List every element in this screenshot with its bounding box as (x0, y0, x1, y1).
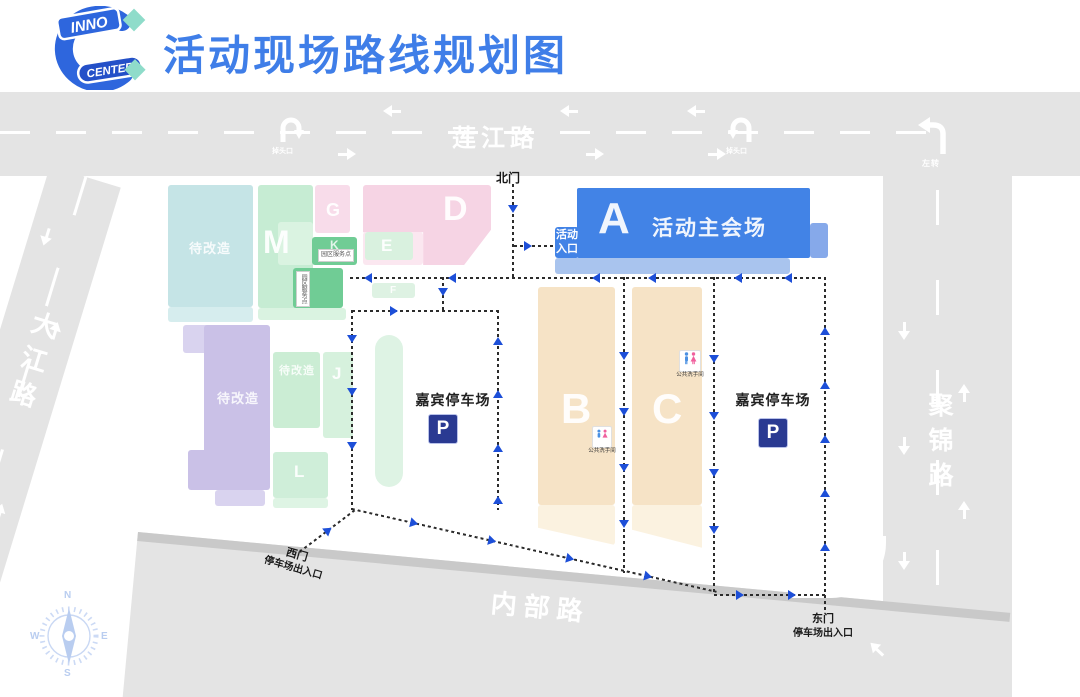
east-gate-label: 东门 停车场出入口 (773, 612, 873, 640)
building-letter-d: D (443, 190, 468, 229)
route-arrow-icon (347, 442, 357, 450)
east-parking-label: 嘉宾停车场 (718, 390, 828, 410)
lane-arrow-up-icon (963, 387, 966, 402)
route-arrow-icon (619, 352, 629, 360)
route-map-page: INNO CENTER 活动现场路线规划图 莲江路 掉头口 掉头口 左转 (0, 0, 1080, 697)
road-label-lianjiang: 莲江路 (452, 118, 539, 153)
route-arrow-icon (820, 381, 830, 389)
lane-arrow-left-icon (563, 110, 578, 113)
page-title: 活动现场路线规划图 (163, 22, 568, 83)
west-parking-label: 嘉宾停车场 (398, 390, 508, 410)
building-letter-f: F (390, 285, 396, 296)
building-letter-j: J (332, 364, 341, 384)
route-arrow-icon (619, 464, 629, 472)
lane-arrow-right-icon (338, 153, 353, 156)
building-letter-c: C (652, 385, 682, 433)
route-arrow-icon (493, 337, 503, 345)
restroom-label: 公共洗手间 (666, 372, 714, 378)
route-arrow-icon (709, 526, 719, 534)
u-turn-label: 掉头口 (272, 146, 293, 156)
building-letter-e: E (381, 236, 392, 256)
site-corner-patch (790, 536, 886, 598)
u-turn-icon (728, 116, 754, 149)
route-north-gate (512, 184, 514, 278)
route-east-loop-bottom (714, 594, 826, 596)
compass-rose-icon (30, 594, 108, 678)
route-arrow-icon (709, 469, 719, 477)
west-parking-badge: P (428, 414, 458, 444)
lane-arrow-right-icon (586, 153, 601, 156)
main-venue-band (555, 258, 790, 274)
building-l-strip (273, 498, 328, 508)
u-turn-icon (278, 116, 304, 149)
route-arrow-icon (347, 388, 357, 396)
venue-letter-a: A (598, 194, 630, 244)
restroom-icon (592, 426, 612, 448)
main-venue-step (810, 223, 828, 258)
route-arrow-icon (820, 327, 830, 335)
venue-entrance-line2: 入口 (556, 243, 578, 257)
lane-arrow-down-icon (903, 322, 906, 337)
route-arrow-icon (409, 517, 419, 529)
route-west-gate-spur (299, 508, 358, 553)
route-arrow-icon (734, 273, 742, 283)
route-arrow-icon (322, 524, 334, 537)
road-label-jujin: 聚锦路 (921, 392, 957, 497)
lane-arrow-right-icon (708, 153, 723, 156)
lane-arrow-turn-icon (871, 644, 884, 656)
compass-w: W (30, 631, 39, 642)
lane-arrow-up-icon (963, 504, 966, 519)
lane-arrow-down-icon (903, 552, 906, 567)
logo-icon: INNO CENTER (38, 6, 156, 90)
route-arrow-icon (820, 543, 830, 551)
renovate-label: 待改造 (189, 238, 231, 257)
venue-entrance-line1: 活动 (556, 229, 578, 243)
route-arrow-icon (709, 412, 719, 420)
compass-n: N (64, 590, 71, 601)
route-west-loop-top (352, 310, 499, 312)
road-label-inner: 内部路 (489, 583, 591, 629)
north-gate-label: 北门 (496, 169, 520, 186)
lane-arrow-down-icon (43, 228, 50, 243)
compass-e: E (101, 631, 108, 642)
route-arrow-icon (347, 335, 357, 343)
route-arrow-icon (788, 590, 796, 600)
service-point-label: 园区服务点 (318, 249, 354, 262)
lane-arrow-left-icon (690, 110, 705, 113)
venue-entrance-label: 活动 入口 (556, 229, 578, 257)
building-renovate-purple-strip (215, 490, 265, 506)
renovate-label: 待改造 (279, 362, 315, 378)
route-main (350, 277, 826, 279)
route-arrow-icon (493, 390, 503, 398)
left-turn-label: 左转 (922, 158, 940, 169)
route-arrow-icon (508, 205, 518, 213)
venue-name: 活动主会场 (652, 212, 767, 242)
building-c-base (632, 505, 702, 550)
service-point-label-vertical: 园区服务点 (296, 271, 310, 307)
compass-s: S (64, 668, 71, 679)
restroom-marker: 公共洗手间 (580, 426, 624, 454)
route-arrow-icon (648, 273, 656, 283)
route-arrow-icon (448, 273, 456, 283)
route-bc-lane (623, 277, 625, 573)
route-arrow-icon (736, 590, 744, 600)
route-arrow-icon (493, 444, 503, 452)
route-arrow-icon (619, 408, 629, 416)
route-arrow-icon (390, 306, 398, 316)
route-arrow-icon (493, 496, 503, 504)
route-arrow-icon (592, 273, 600, 283)
building-renovate-purple-foot (188, 450, 218, 490)
inno-center-logo: INNO CENTER (38, 6, 156, 90)
parking-lane-strip (375, 335, 403, 487)
lane-arrow-up-icon (0, 506, 3, 521)
building-letter-g: G (326, 200, 340, 221)
u-turn-label: 掉头口 (726, 146, 747, 156)
route-arrow-icon (565, 553, 575, 565)
building-b-base (538, 505, 615, 545)
route-arrow-icon (524, 241, 532, 251)
route-arrow-icon (438, 288, 448, 296)
route-arrow-icon (619, 520, 629, 528)
building-m-strip (258, 308, 346, 320)
restroom-marker: 公共洗手间 (666, 350, 714, 378)
route-arrow-icon (820, 435, 830, 443)
building-letter-m: M (263, 224, 290, 261)
route-arrow-icon (364, 273, 372, 283)
lane-arrow-down-icon (903, 437, 906, 452)
route-arrow-icon (709, 355, 719, 363)
route-east-loop-left (713, 277, 715, 595)
compass: N E S W (30, 594, 108, 678)
east-parking-badge: P (758, 418, 788, 448)
east-gate-line2: 停车场出入口 (773, 627, 873, 641)
road-label-dajiang: 大江路 (0, 306, 65, 420)
route-arrow-icon (820, 489, 830, 497)
renovate-label: 待改造 (217, 388, 259, 407)
restroom-label: 公共洗手间 (580, 448, 624, 454)
left-turn-icon (913, 114, 953, 161)
route-arrow-icon (487, 535, 497, 547)
building-letter-l: L (294, 462, 304, 482)
lane-arrow-left-icon (386, 110, 401, 113)
restroom-icon (679, 350, 701, 372)
east-gate-line1: 东门 (773, 612, 873, 627)
route-arrow-icon (784, 273, 792, 283)
route-entrance-spur (514, 245, 556, 247)
building-renovate-teal-strip (168, 307, 253, 322)
